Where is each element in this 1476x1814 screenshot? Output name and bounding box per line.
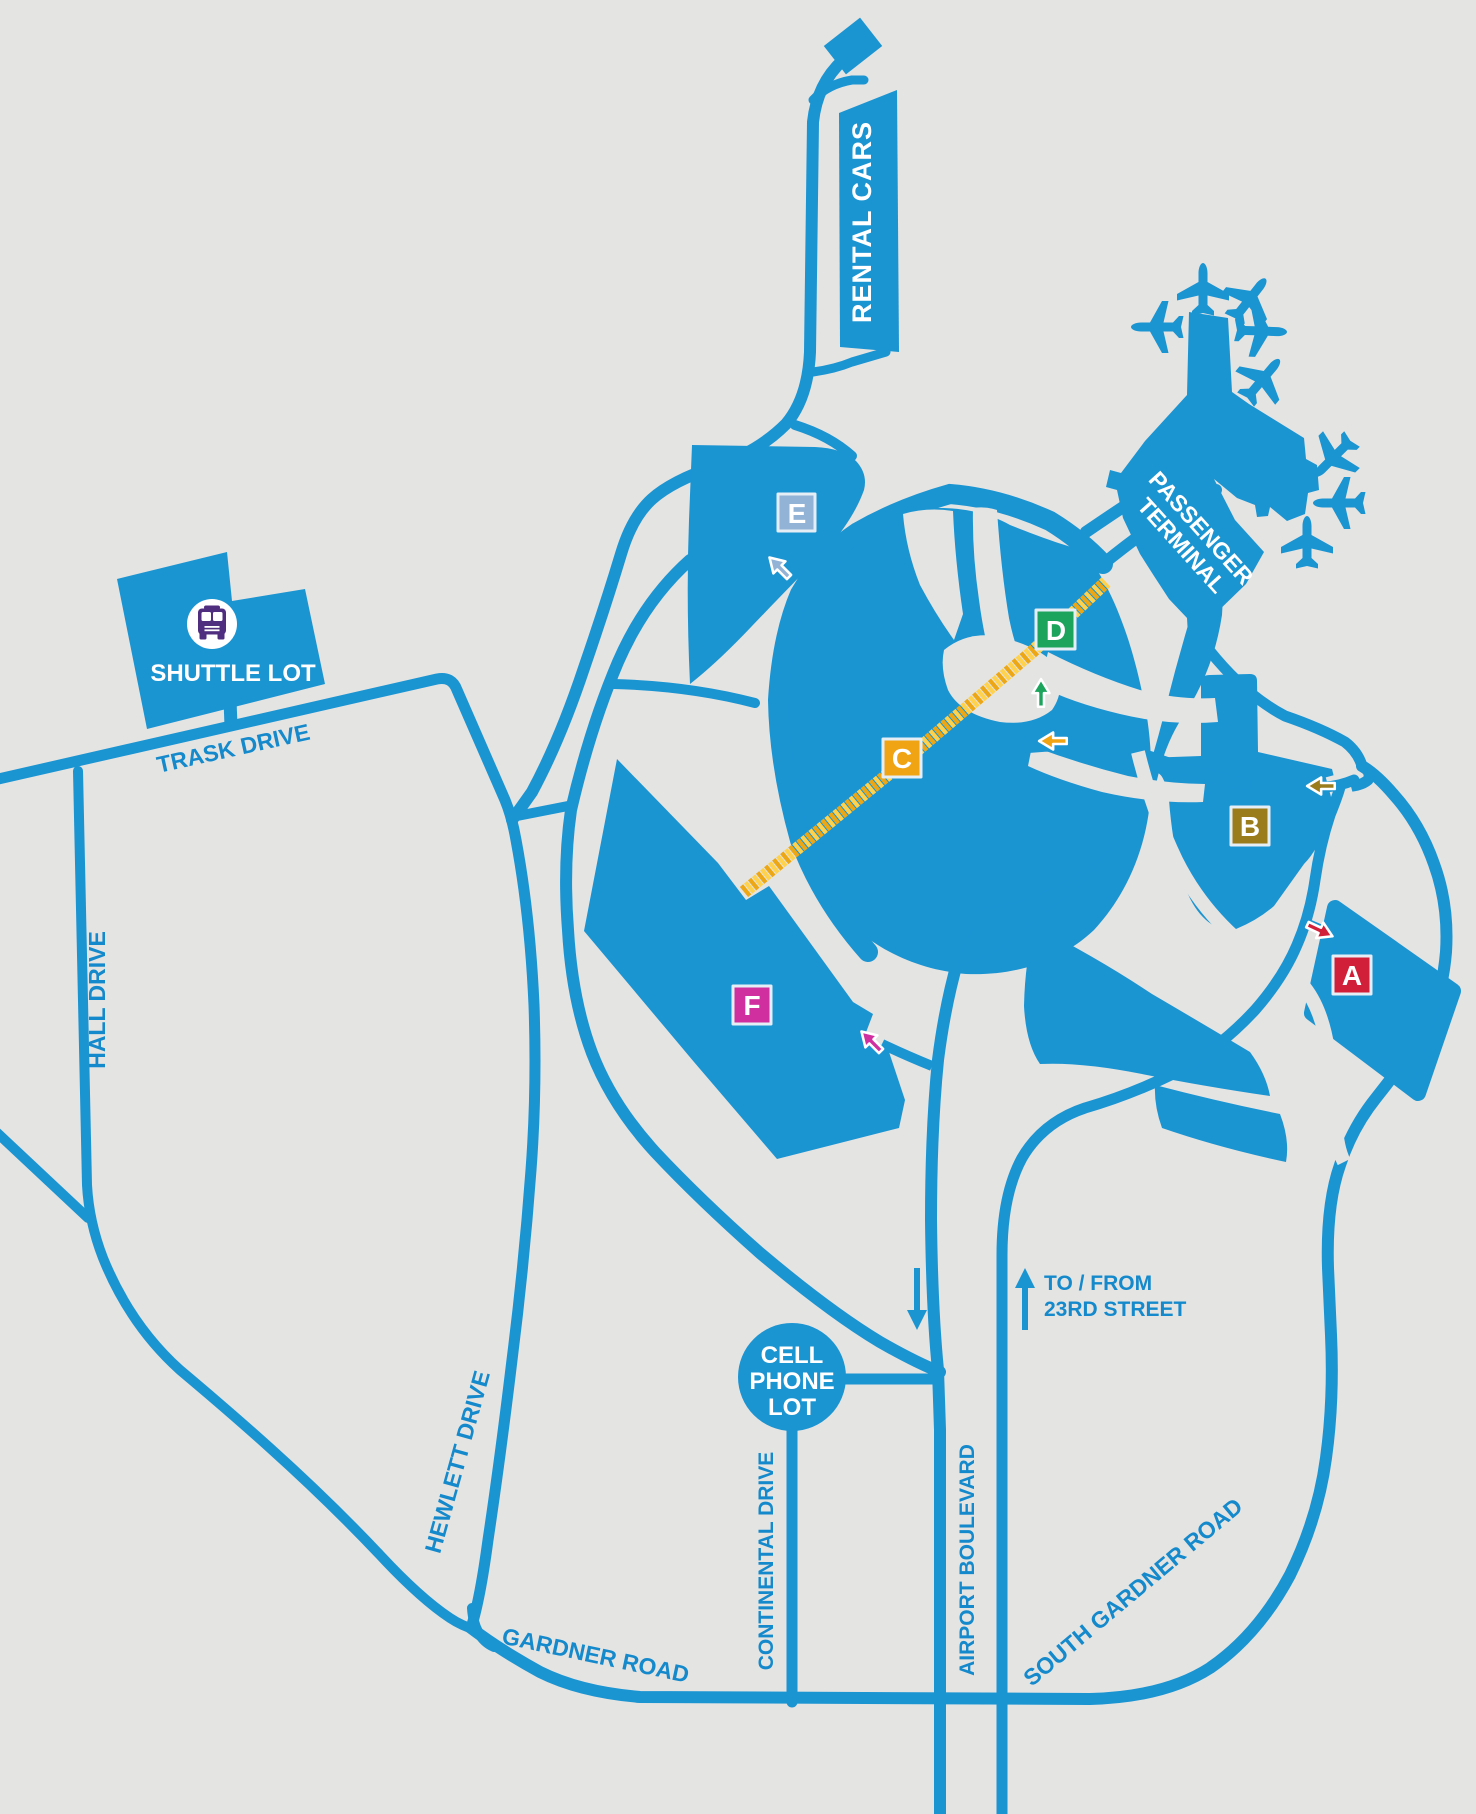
svg-text:LOT: LOT [768,1394,816,1421]
svg-text:A: A [1342,960,1362,991]
svg-text:CONTINENTAL DRIVE: CONTINENTAL DRIVE [755,1452,778,1671]
svg-text:E: E [788,498,807,529]
svg-text:CELL: CELL [761,1342,824,1369]
svg-text:B: B [1240,811,1260,842]
svg-text:AIRPORT BOULEVARD: AIRPORT BOULEVARD [956,1444,979,1676]
svg-text:HALL DRIVE: HALL DRIVE [84,931,110,1069]
svg-text:23RD STREET: 23RD STREET [1044,1298,1187,1321]
svg-text:PHONE: PHONE [749,1368,834,1395]
svg-text:D: D [1046,615,1066,646]
svg-text:TO / FROM: TO / FROM [1044,1272,1152,1295]
svg-text:F: F [743,990,760,1021]
svg-text:SHUTTLE LOT: SHUTTLE LOT [150,660,316,687]
svg-text:RENTAL CARS: RENTAL CARS [847,121,877,323]
svg-text:C: C [892,743,912,774]
